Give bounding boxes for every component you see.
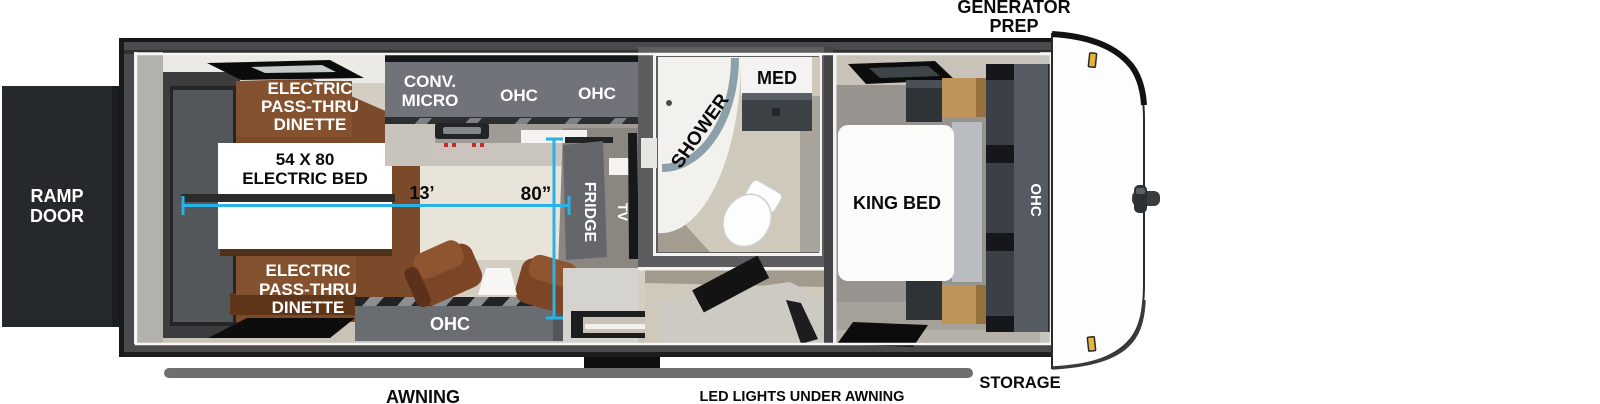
svg-text:CONV.: CONV. <box>404 72 456 91</box>
svg-text:OHC: OHC <box>500 86 538 105</box>
svg-text:MICRO: MICRO <box>402 91 459 110</box>
svg-text:FRIDGE: FRIDGE <box>581 182 598 243</box>
svg-text:KING BED: KING BED <box>853 193 941 213</box>
svg-text:GENERATOR: GENERATOR <box>957 0 1070 17</box>
svg-text:DINETTE: DINETTE <box>274 115 347 134</box>
svg-text:DINETTE: DINETTE <box>272 298 345 317</box>
svg-text:OHC: OHC <box>1027 183 1044 217</box>
svg-text:PREP: PREP <box>989 16 1038 36</box>
svg-text:ELECTRIC: ELECTRIC <box>266 261 351 280</box>
svg-text:MED: MED <box>757 68 797 88</box>
svg-text:ELECTRIC BED: ELECTRIC BED <box>242 169 368 188</box>
svg-text:STORAGE: STORAGE <box>979 374 1060 392</box>
svg-text:RAMP: RAMP <box>31 186 84 206</box>
svg-text:PASS-THRU: PASS-THRU <box>259 280 357 299</box>
svg-text:OHC: OHC <box>430 314 470 334</box>
svg-text:LED LIGHTS UNDER AWNING: LED LIGHTS UNDER AWNING <box>700 389 905 404</box>
svg-text:OHC: OHC <box>578 84 616 103</box>
svg-text:DOOR: DOOR <box>30 206 84 226</box>
svg-text:TV: TV <box>615 203 631 222</box>
svg-text:54 X 80: 54 X 80 <box>276 150 335 169</box>
svg-text:AWNING: AWNING <box>386 387 460 404</box>
svg-text:ELECTRIC: ELECTRIC <box>268 79 353 98</box>
svg-text:80”: 80” <box>521 184 552 205</box>
svg-text:PASS-THRU: PASS-THRU <box>261 97 359 116</box>
svg-text:13’: 13’ <box>409 183 434 203</box>
